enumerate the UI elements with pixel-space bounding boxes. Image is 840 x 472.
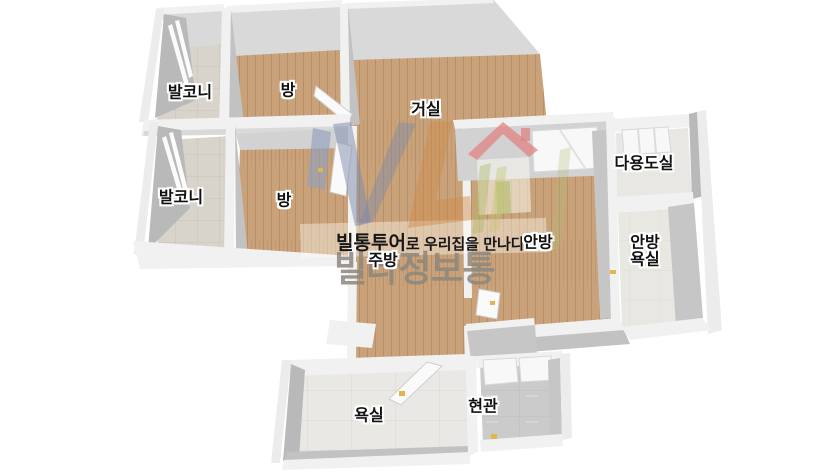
door-swing-marker — [491, 434, 497, 439]
utility-shelf — [622, 127, 671, 155]
watermark-slogan: 빌통투어로 우리집을 만나다 — [336, 228, 525, 255]
door-swing-marker — [610, 270, 616, 274]
door-swing-marker — [399, 391, 405, 396]
room-label-room-2: 방 — [277, 192, 292, 209]
watermark-slogan-rest: 로 우리집을 만나다 — [406, 236, 525, 253]
room-label-bathroom: 욕실 — [354, 407, 383, 424]
room-label-kitchen: 주방 — [368, 252, 397, 269]
room-label-entrance: 현관 — [468, 398, 497, 415]
watermark-brand: 빌라정보통 — [334, 251, 495, 287]
room-label-room-1: 방 — [281, 82, 296, 99]
room-label-master-bathroom: 안방 욕실 — [630, 235, 659, 270]
shoe-cabinet — [519, 356, 553, 382]
room-label-master-bedroom: 안방 — [523, 234, 552, 251]
room-label-balcony-1: 발코니 — [168, 84, 212, 101]
shoe-cabinet — [483, 358, 518, 385]
floorplan: 빌통투어로 우리집을 만나다 빌라정보통 발코니 방 거실 발코니 방 다용도실… — [0, 0, 840, 472]
room-label-living-room: 거실 — [411, 101, 440, 118]
door-swing-marker — [490, 301, 495, 305]
watermark-slogan-brand: 빌통투어 — [336, 233, 406, 254]
master-door — [476, 289, 500, 319]
room-label-utility-room: 다용도실 — [615, 155, 674, 172]
room-label-balcony-2: 발코니 — [159, 189, 203, 206]
